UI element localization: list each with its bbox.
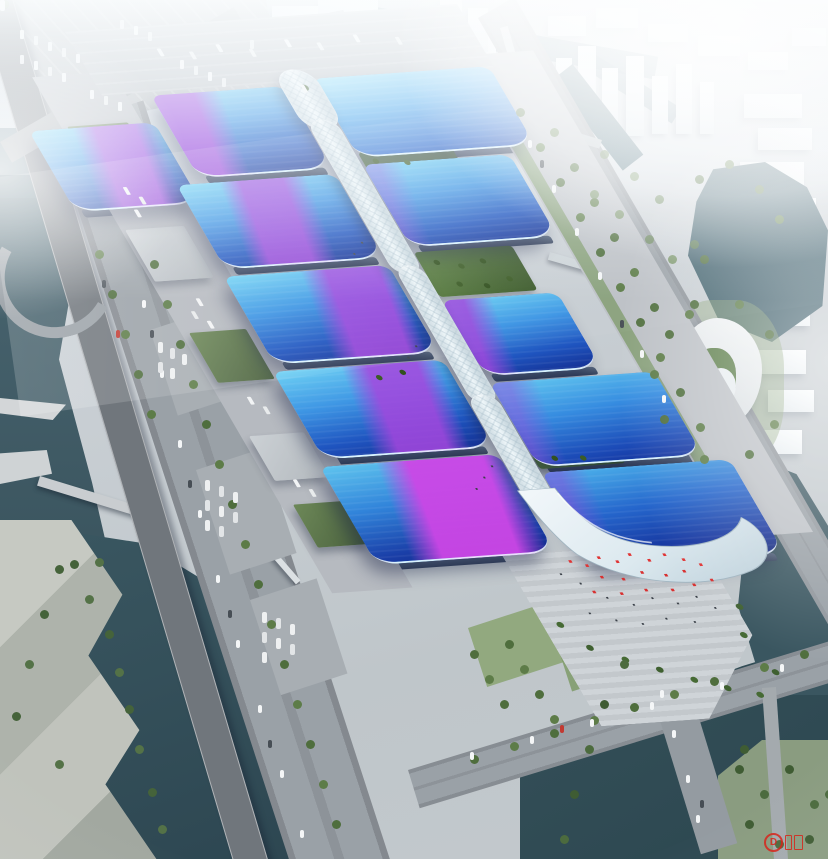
- city-block: [792, 28, 826, 46]
- city-block: [596, 8, 638, 28]
- city-block: [648, 24, 688, 42]
- watermark-glyph: [785, 835, 792, 850]
- watermark-glyph: [794, 835, 803, 850]
- city-block: [748, 52, 788, 70]
- city-tower: [700, 82, 714, 134]
- city-block: [744, 94, 802, 118]
- city-tower: [626, 56, 644, 136]
- city-block: [698, 36, 740, 56]
- city-tower: [652, 76, 668, 134]
- aerial-rendering: D: [0, 0, 828, 859]
- city-tower: [676, 64, 692, 134]
- city-block: [758, 128, 812, 150]
- city-block: [548, 16, 586, 36]
- watermark-logo: D: [764, 833, 783, 852]
- watermark: D: [764, 833, 803, 852]
